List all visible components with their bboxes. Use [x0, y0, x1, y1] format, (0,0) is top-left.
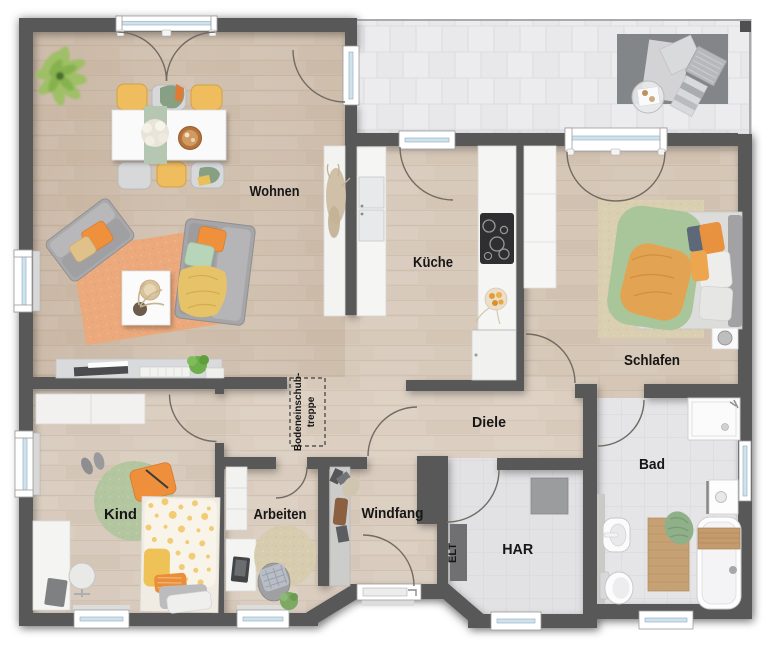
svg-text:Kind: Kind [104, 507, 137, 523]
svg-text:Windfang: Windfang [362, 506, 424, 522]
svg-text:treppe: treppe [306, 396, 317, 427]
svg-text:HAR: HAR [502, 542, 534, 558]
svg-text:Bad: Bad [639, 457, 665, 473]
svg-text:Wohnen: Wohnen [250, 184, 300, 200]
svg-text:ELT: ELT [447, 543, 459, 563]
svg-text:Schlafen: Schlafen [624, 353, 680, 369]
svg-text:Diele: Diele [472, 415, 506, 431]
svg-text:Küche: Küche [413, 255, 453, 271]
svg-text:Bodeneinschub-: Bodeneinschub- [293, 373, 304, 451]
svg-text:Arbeiten: Arbeiten [254, 507, 307, 523]
